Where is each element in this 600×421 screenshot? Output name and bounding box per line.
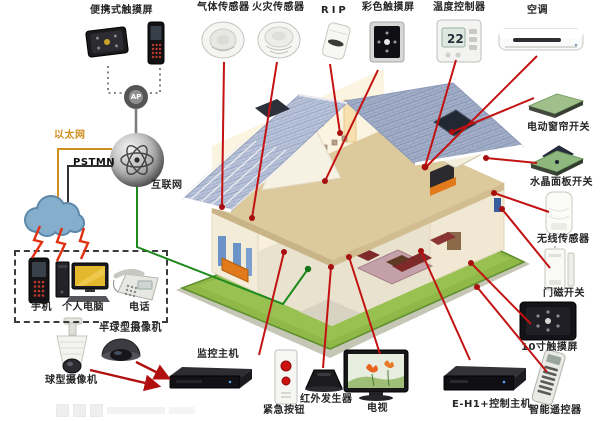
- label-gas-sensor: 气体传感器: [197, 3, 250, 13]
- label-pc: 个人电脑: [62, 303, 104, 313]
- label-air-conditioner: 空调: [527, 6, 548, 16]
- label-wireless-sensor: 无线传感器: [537, 235, 590, 245]
- door-magnet-switch-device: [539, 246, 579, 294]
- portable-phone-device: [144, 20, 168, 66]
- gas-sensor-device: [200, 20, 246, 62]
- eh1-control-host-device: [434, 360, 528, 396]
- label-ir-generator: 红外发生器: [300, 395, 353, 405]
- label-ethernet: 以太网: [54, 131, 86, 141]
- color-touchscreen-device: [366, 20, 408, 64]
- label-color-touchscreen: 彩色触摸屏: [362, 3, 415, 13]
- label-crystal-panel-switch: 水晶面板开关: [530, 178, 593, 188]
- label-smart-remote: 智能遥控器: [529, 406, 582, 416]
- label-emergency-button: 紧急按钮: [263, 406, 305, 416]
- temperature-controller-device: 22: [434, 18, 484, 64]
- air-conditioner-device: [497, 26, 587, 56]
- label-mobile-phone: 手机: [31, 303, 52, 313]
- device-red-dots: [219, 129, 505, 290]
- label-dome-camera: 半球型摄像机: [99, 324, 162, 334]
- house-roof: [183, 83, 523, 211]
- label-portable-touchscreen: 便携式触摸屏: [90, 6, 153, 16]
- watermark: [56, 404, 195, 417]
- ptz-camera-device: [40, 316, 94, 378]
- portable-tablet-device: [84, 24, 130, 60]
- label-pstmn: PSTMN: [73, 158, 115, 168]
- label-fire-sensor: 火灾传感器: [252, 3, 305, 13]
- house-lawn: [176, 202, 530, 358]
- crystal-panel-switch-device: [527, 140, 587, 178]
- thermostat-reading: 22: [447, 32, 464, 46]
- label-internet: 互联网: [151, 181, 183, 191]
- emergency-button-device: [270, 348, 302, 408]
- house-ground-floor: [212, 129, 504, 326]
- fire-sensor-device: [256, 20, 302, 62]
- house-upper-floor: [212, 69, 504, 267]
- touchscreen-10inch-device: [517, 298, 579, 344]
- label-touchscreen-10inch: 10寸触摸屏: [521, 343, 578, 353]
- label-tv: 电视: [367, 404, 388, 414]
- ir-generator-device: [300, 364, 348, 394]
- cloud-shape: [16, 190, 90, 238]
- wireless-sensor-device: [541, 190, 577, 238]
- label-door-magnet-switch: 门磁开关: [543, 289, 585, 299]
- smart-home-diagram: 22: [0, 0, 600, 421]
- ap-label: AP: [131, 93, 142, 101]
- pir-sensor-device: [316, 20, 356, 64]
- dome-camera-device: [98, 332, 144, 368]
- label-temperature-controller: 温度控制器: [433, 3, 486, 13]
- electric-curtain-switch-device: [523, 90, 587, 120]
- label-monitor-host: 监控主机: [197, 350, 239, 360]
- ap-node: AP: [124, 85, 148, 109]
- smart-remote-device: [527, 348, 571, 408]
- label-ptz-camera: 球型摄像机: [45, 376, 98, 386]
- label-eh1-control-host: E-H1+控制主机: [452, 400, 531, 410]
- label-telephone: 电话: [129, 303, 150, 313]
- label-electric-curtain-switch: 电动窗帘开关: [527, 123, 590, 133]
- internet-sphere: [110, 133, 164, 187]
- device-red-lines: [222, 56, 550, 372]
- monitor-host-device: [164, 362, 256, 394]
- atom-icon: [117, 140, 157, 180]
- label-pir: RIP: [321, 6, 349, 16]
